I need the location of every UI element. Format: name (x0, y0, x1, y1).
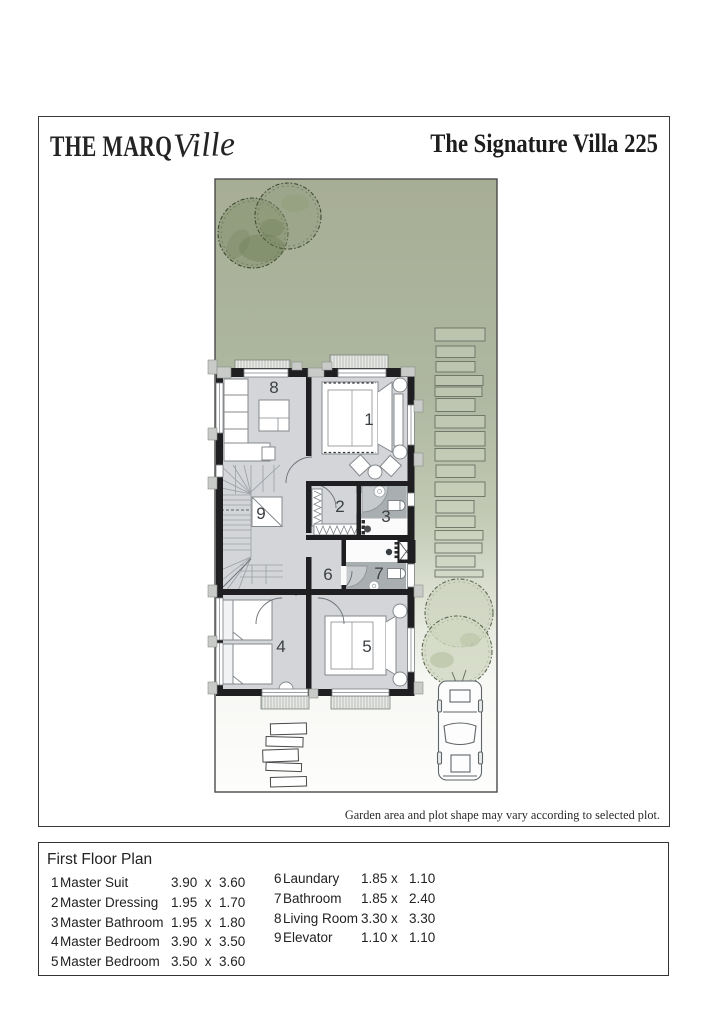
svg-text:9: 9 (256, 504, 265, 523)
svg-text:4: 4 (276, 637, 285, 656)
svg-text:1: 1 (364, 410, 373, 429)
svg-text:8: 8 (269, 378, 278, 397)
svg-text:5: 5 (362, 637, 371, 656)
svg-text:3: 3 (381, 507, 390, 526)
svg-text:7: 7 (374, 564, 383, 583)
svg-text:6: 6 (323, 565, 332, 584)
svg-text:2: 2 (335, 497, 344, 516)
